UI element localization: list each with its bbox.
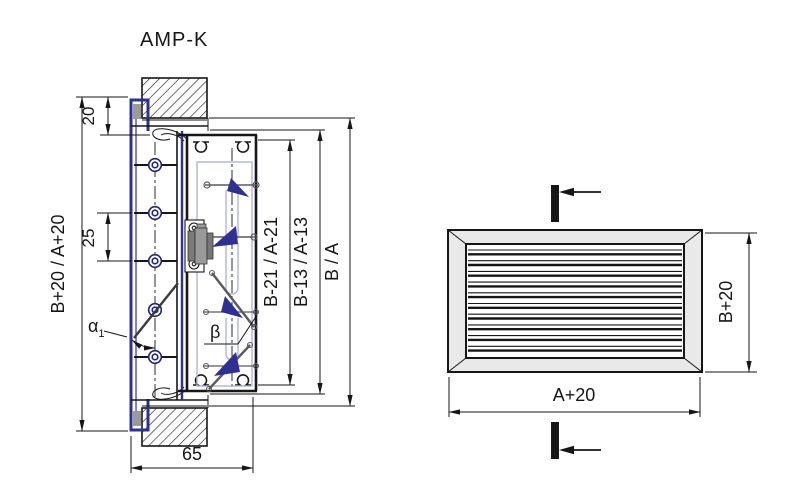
section-cut-mark-top: [551, 185, 601, 222]
dim-front-width: A+20: [449, 377, 700, 417]
omega-clip-top-left: [193, 142, 209, 152]
dim-louver-pitch: 25: [79, 213, 132, 261]
front-view: A+20 B+20: [448, 185, 757, 459]
gasket-top: [133, 104, 141, 119]
wall-hatch-top: [142, 78, 207, 118]
dim-front-height: B+20: [705, 233, 757, 372]
drawing-title: AMP-K: [140, 29, 208, 51]
dim-inner-clear-label: B-21 / A-21: [261, 217, 281, 307]
alpha-angle-annotation: α1: [88, 316, 155, 348]
louver-axle-pivot: [152, 162, 158, 168]
louver-axle-pivot: [152, 258, 158, 264]
dim-overall-height-label: B+20 / A+20: [48, 214, 68, 313]
louver-axle-pivot: [152, 210, 158, 216]
beta-label: β: [210, 322, 220, 342]
dim-front-width-label: A+20: [553, 385, 596, 405]
damper-blades: [203, 178, 259, 392]
dim-frame-inner-label: B-13 / A-13: [291, 217, 311, 307]
tilted-louver-blade: [134, 283, 178, 338]
louver-axles: [134, 159, 177, 364]
gasket-bottom: [133, 411, 141, 426]
dim-louver-pitch-label: 25: [79, 229, 98, 248]
dim-total-depth-label: 65: [182, 444, 202, 464]
dim-inner-clear: B-21 / A-21: [258, 140, 295, 385]
wall-hatch-bottom: [142, 408, 207, 446]
alpha-label: α1: [88, 316, 105, 340]
cut-arrow-top: [559, 188, 574, 196]
omega-clip-top-right: [235, 142, 251, 152]
damper-blade-1: [204, 178, 259, 197]
dim-flange-depth-label: 20: [79, 107, 98, 126]
louver-axle-pivot: [152, 354, 158, 360]
front-flange-top: [131, 118, 208, 141]
louver-panel: [134, 131, 182, 400]
damper-blade-4: [204, 343, 259, 392]
actuator-mechanism: [185, 220, 213, 272]
mounting-frame: [131, 100, 148, 430]
cut-arrow-bottom: [559, 446, 574, 454]
drawing-page: AMP-K: [0, 0, 800, 500]
dim-nominal-label: B / A: [322, 243, 342, 281]
technical-drawing: AMP-K: [0, 0, 800, 500]
omega-clip-bottom-left: [193, 375, 209, 385]
omega-clip-bottom-right: [235, 375, 251, 385]
dim-overall-height: B+20 / A+20: [48, 97, 128, 431]
section-view: α1: [48, 78, 355, 473]
damper-blade-3: [204, 271, 259, 330]
dim-front-height-label: B+20: [716, 281, 736, 324]
section-cut-mark-bottom: [551, 422, 601, 459]
